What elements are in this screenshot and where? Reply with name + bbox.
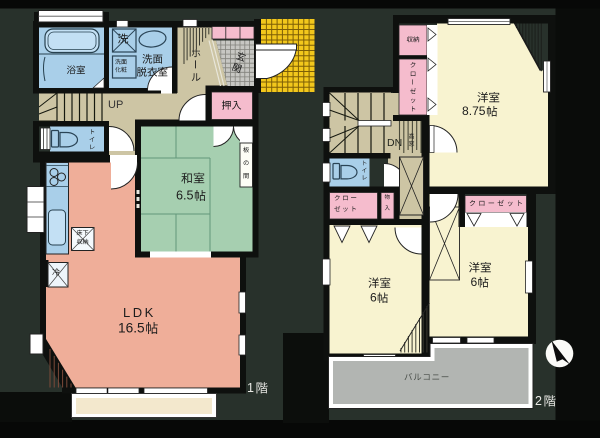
svg-text:LDK: LDK — [123, 305, 156, 320]
svg-text:UP: UP — [108, 99, 123, 111]
svg-text:1: 1 — [247, 381, 254, 395]
svg-text:6.5: 6.5 — [176, 189, 194, 203]
svg-text:16.5: 16.5 — [118, 320, 145, 335]
svg-text:2: 2 — [535, 394, 542, 408]
svg-text:6: 6 — [370, 291, 377, 305]
svg-text:6: 6 — [471, 275, 478, 289]
svg-text:8.75: 8.75 — [462, 104, 486, 118]
